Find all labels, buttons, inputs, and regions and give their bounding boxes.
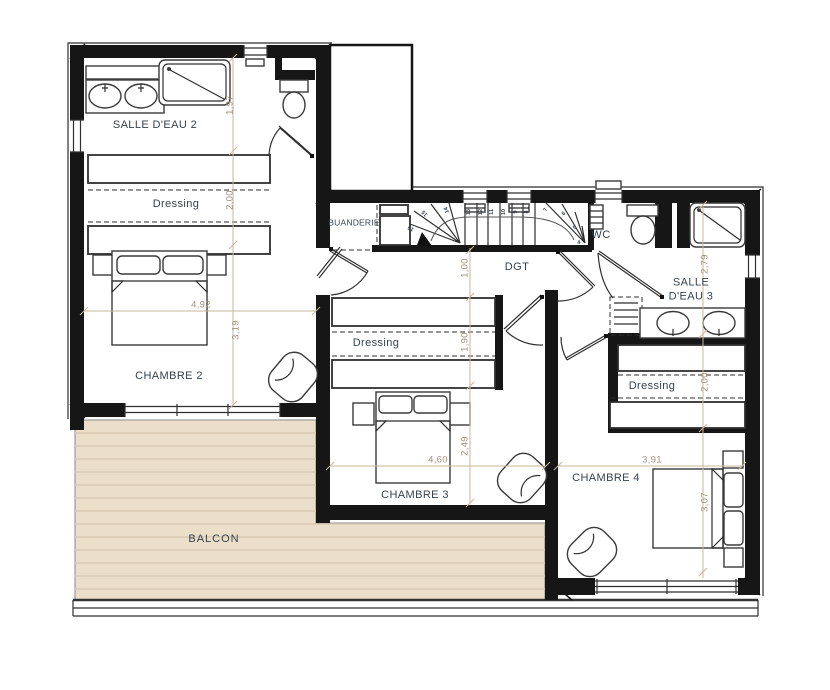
shower-icon [690, 203, 745, 247]
dimension-label: 2,49 [460, 436, 471, 456]
stair-direction-arrow-icon [417, 232, 432, 246]
room-label-balcon: BALCON [188, 533, 239, 547]
door-chambre-2 [329, 247, 368, 295]
floor-plan: SALLE D'EAU 2 Dressing CHAMBRE 2 BUANDER… [0, 0, 830, 690]
stair-tread-number: 10 [501, 209, 507, 215]
window-chambre-2 [125, 403, 280, 417]
room-label-dgt: DGT [505, 261, 529, 275]
stair-tread-number: 13 [466, 209, 472, 215]
stair-tread-number: 12 [478, 209, 484, 215]
door-salle-deau-3 [598, 251, 664, 299]
radiator-icon [246, 59, 264, 66]
room-label-wc: WC [591, 229, 610, 243]
window-stairwell-2 [507, 190, 531, 212]
room-label-buanderie: BUANDERIE [328, 218, 379, 229]
door-chambre-3 [504, 295, 544, 345]
nightstand [723, 451, 743, 468]
pillow [117, 256, 160, 274]
cupboard [380, 205, 408, 214]
room-label-dressing-right: Dressing [629, 380, 676, 394]
floor-plan-drawing [0, 0, 830, 690]
nightstand [353, 403, 374, 425]
armchair-icon [263, 347, 323, 408]
dimension-label: 2,00 [225, 190, 236, 210]
door-dressing-right [561, 334, 608, 360]
door-salle-deau-2 [269, 126, 314, 158]
pillow [379, 396, 412, 413]
shower-icon [159, 60, 230, 105]
dimension-label: 1,90 [460, 332, 471, 352]
armchair-icon [492, 448, 553, 509]
stair-tread-number: 11 [489, 209, 495, 215]
staircase [410, 203, 585, 246]
dimension-label: 1,00 [460, 258, 471, 278]
nightstand [93, 255, 113, 275]
stairwell-void [330, 45, 412, 191]
armchair-icon [562, 522, 623, 583]
window-salle-deau-3-right [745, 255, 760, 278]
pillow [724, 511, 743, 545]
dimension-label: 2,79 [700, 254, 711, 274]
pillow [163, 256, 203, 274]
nightstand [449, 403, 470, 425]
room-label-salle-deau-3: SALLE D'EAU 3 [669, 276, 714, 304]
window-salle-deau-2-left [70, 120, 84, 152]
dimension-label: 3,19 [231, 320, 242, 340]
stair-tread-number: 8 [524, 210, 530, 213]
vanity-shelf [86, 66, 164, 79]
door-wc [556, 250, 595, 301]
nightstand [724, 548, 743, 567]
room-label-dressing-middle: Dressing [353, 337, 400, 351]
toilet-icon [280, 80, 308, 118]
cupboard [380, 216, 410, 245]
dimension-label: 1,97 [225, 95, 236, 115]
window-chambre-4 [595, 578, 738, 595]
toilet-icon [627, 205, 658, 244]
dimension-label: 2,00 [700, 372, 711, 392]
chambre-4-furniture [562, 451, 743, 582]
pillow [414, 396, 447, 413]
room-label-chambre-2: CHAMBRE 2 [135, 370, 203, 384]
room-label-dressing-left: Dressing [153, 198, 200, 212]
stair-tread-number: 9 [513, 210, 519, 213]
room-label-chambre-4: CHAMBRE 4 [572, 472, 640, 486]
dimension-label: 4,92 [191, 300, 211, 311]
dimension-label: 3,91 [642, 455, 662, 466]
window-salle-deau-2-top [244, 45, 267, 66]
pillow [724, 473, 743, 507]
dimension-label: 4,60 [428, 455, 448, 466]
window-wc [595, 181, 622, 203]
dimension-label: 3,07 [700, 492, 711, 512]
chambre-2-furniture [93, 251, 323, 407]
buanderie [317, 205, 410, 278]
balcony-railing [73, 600, 758, 616]
room-label-chambre-3: CHAMBRE 3 [381, 489, 449, 503]
room-label-salle-deau-2: SALLE D'EAU 2 [113, 119, 197, 133]
nightstand [206, 255, 226, 275]
door-opening-chambre-2 [316, 248, 330, 295]
